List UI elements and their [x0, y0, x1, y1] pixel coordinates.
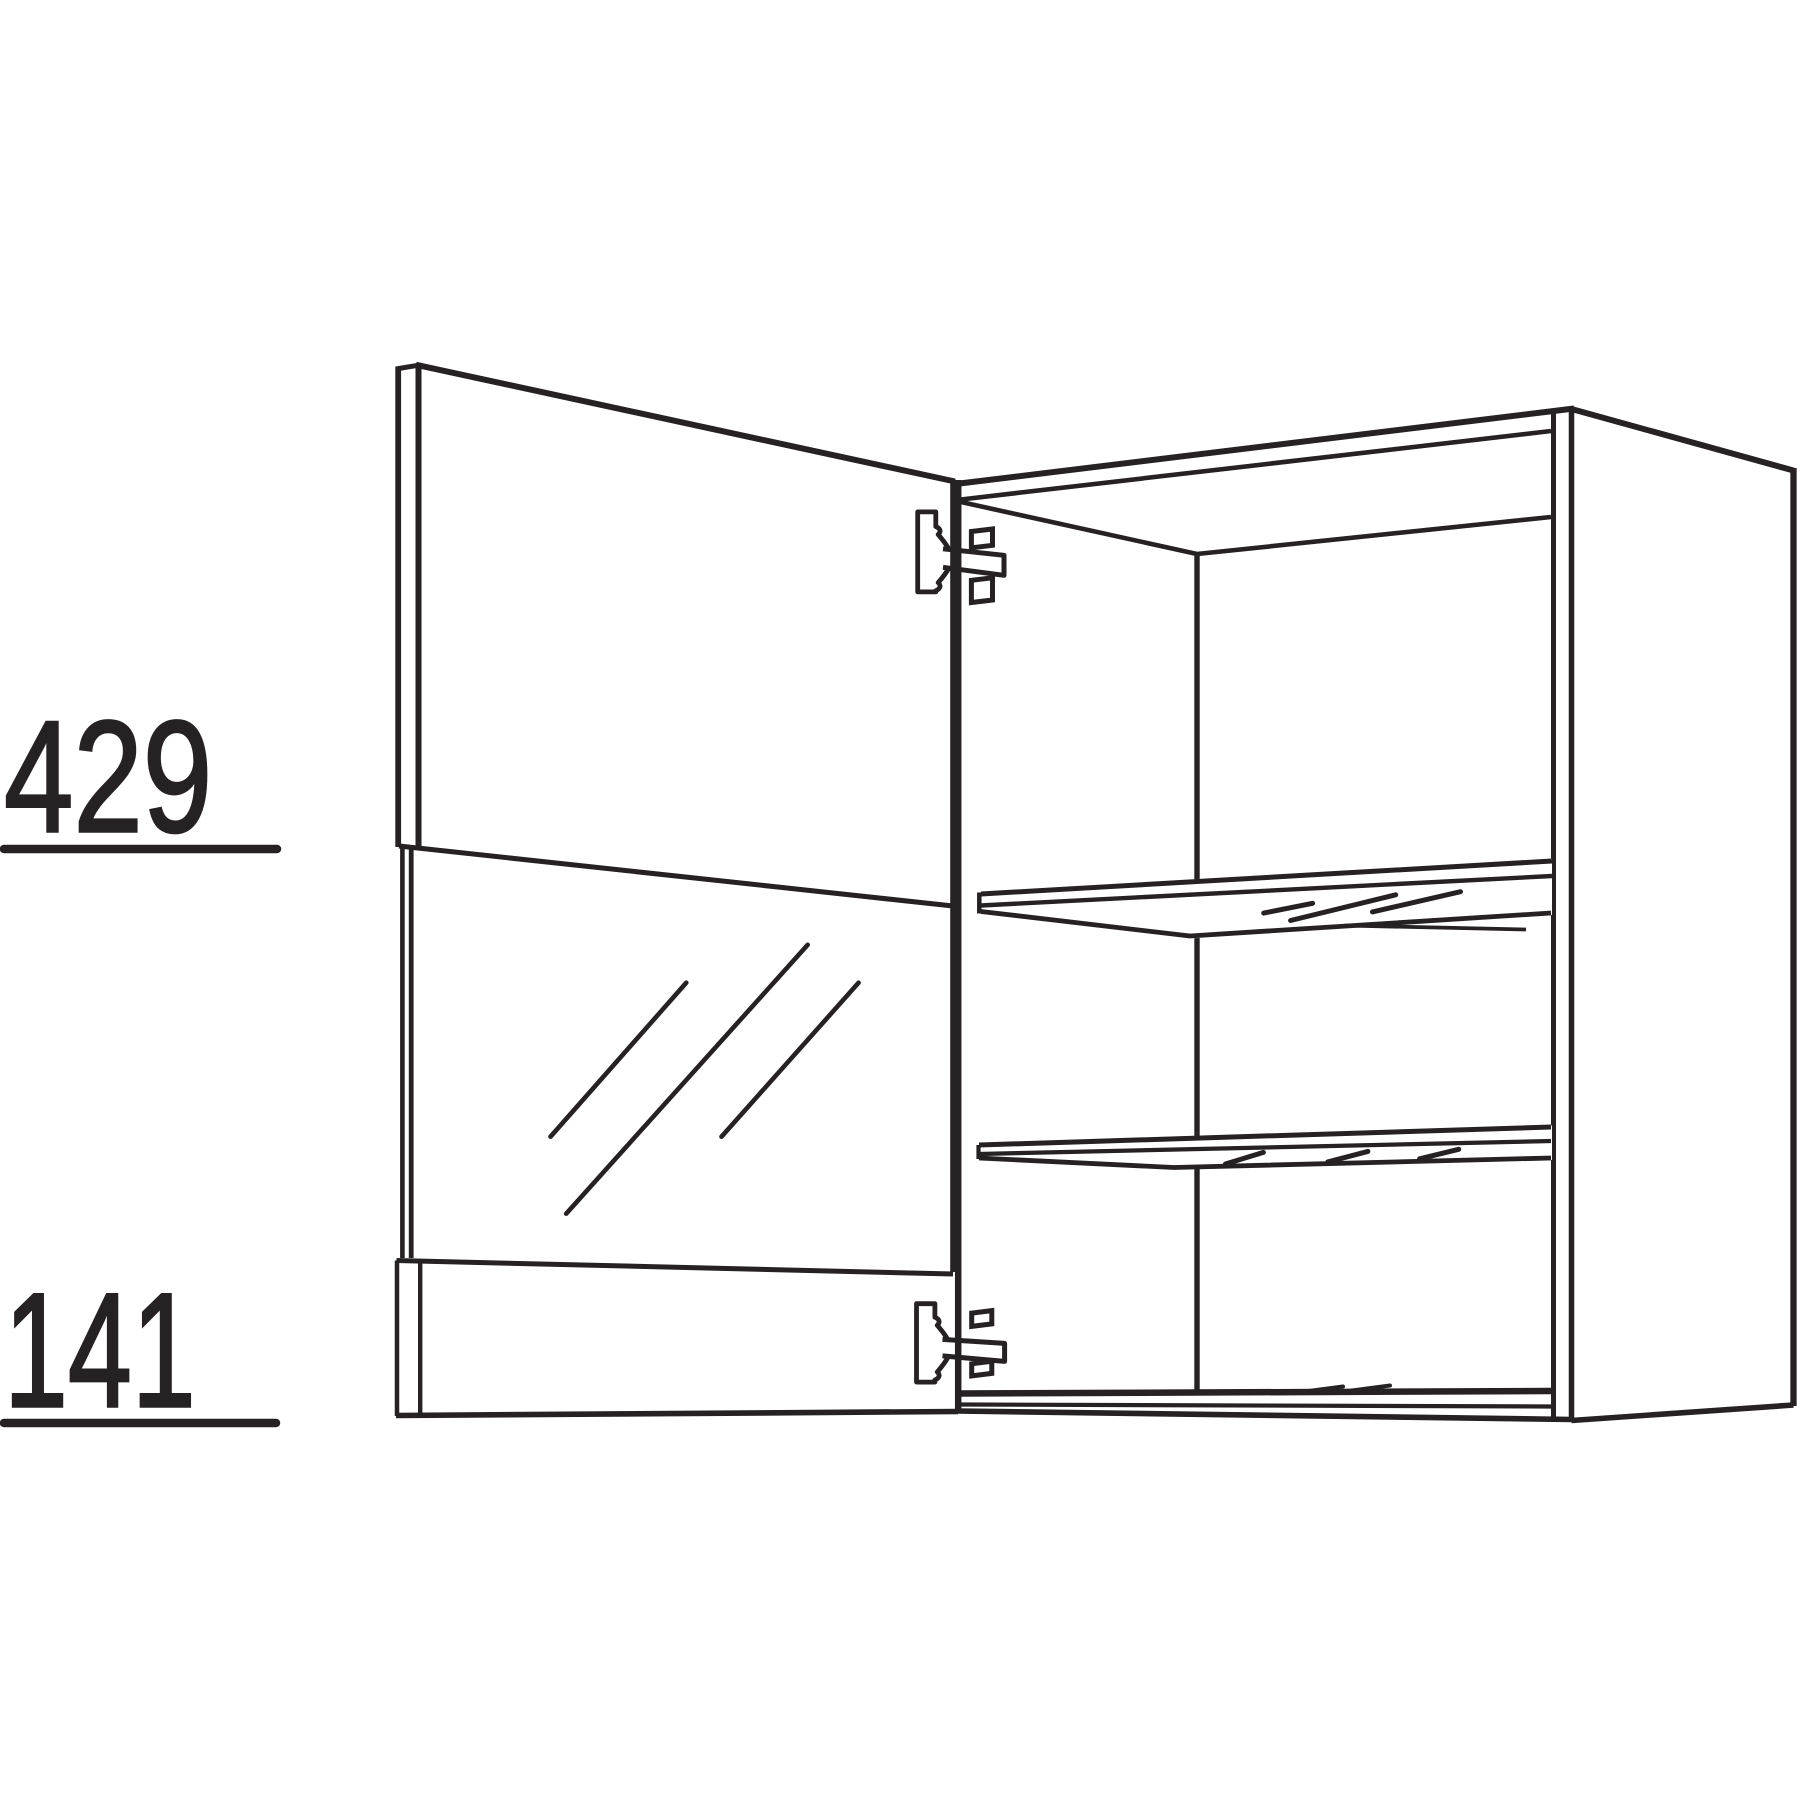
- svg-text:429: 429: [4, 689, 212, 866]
- svg-text:141: 141: [4, 1259, 196, 1442]
